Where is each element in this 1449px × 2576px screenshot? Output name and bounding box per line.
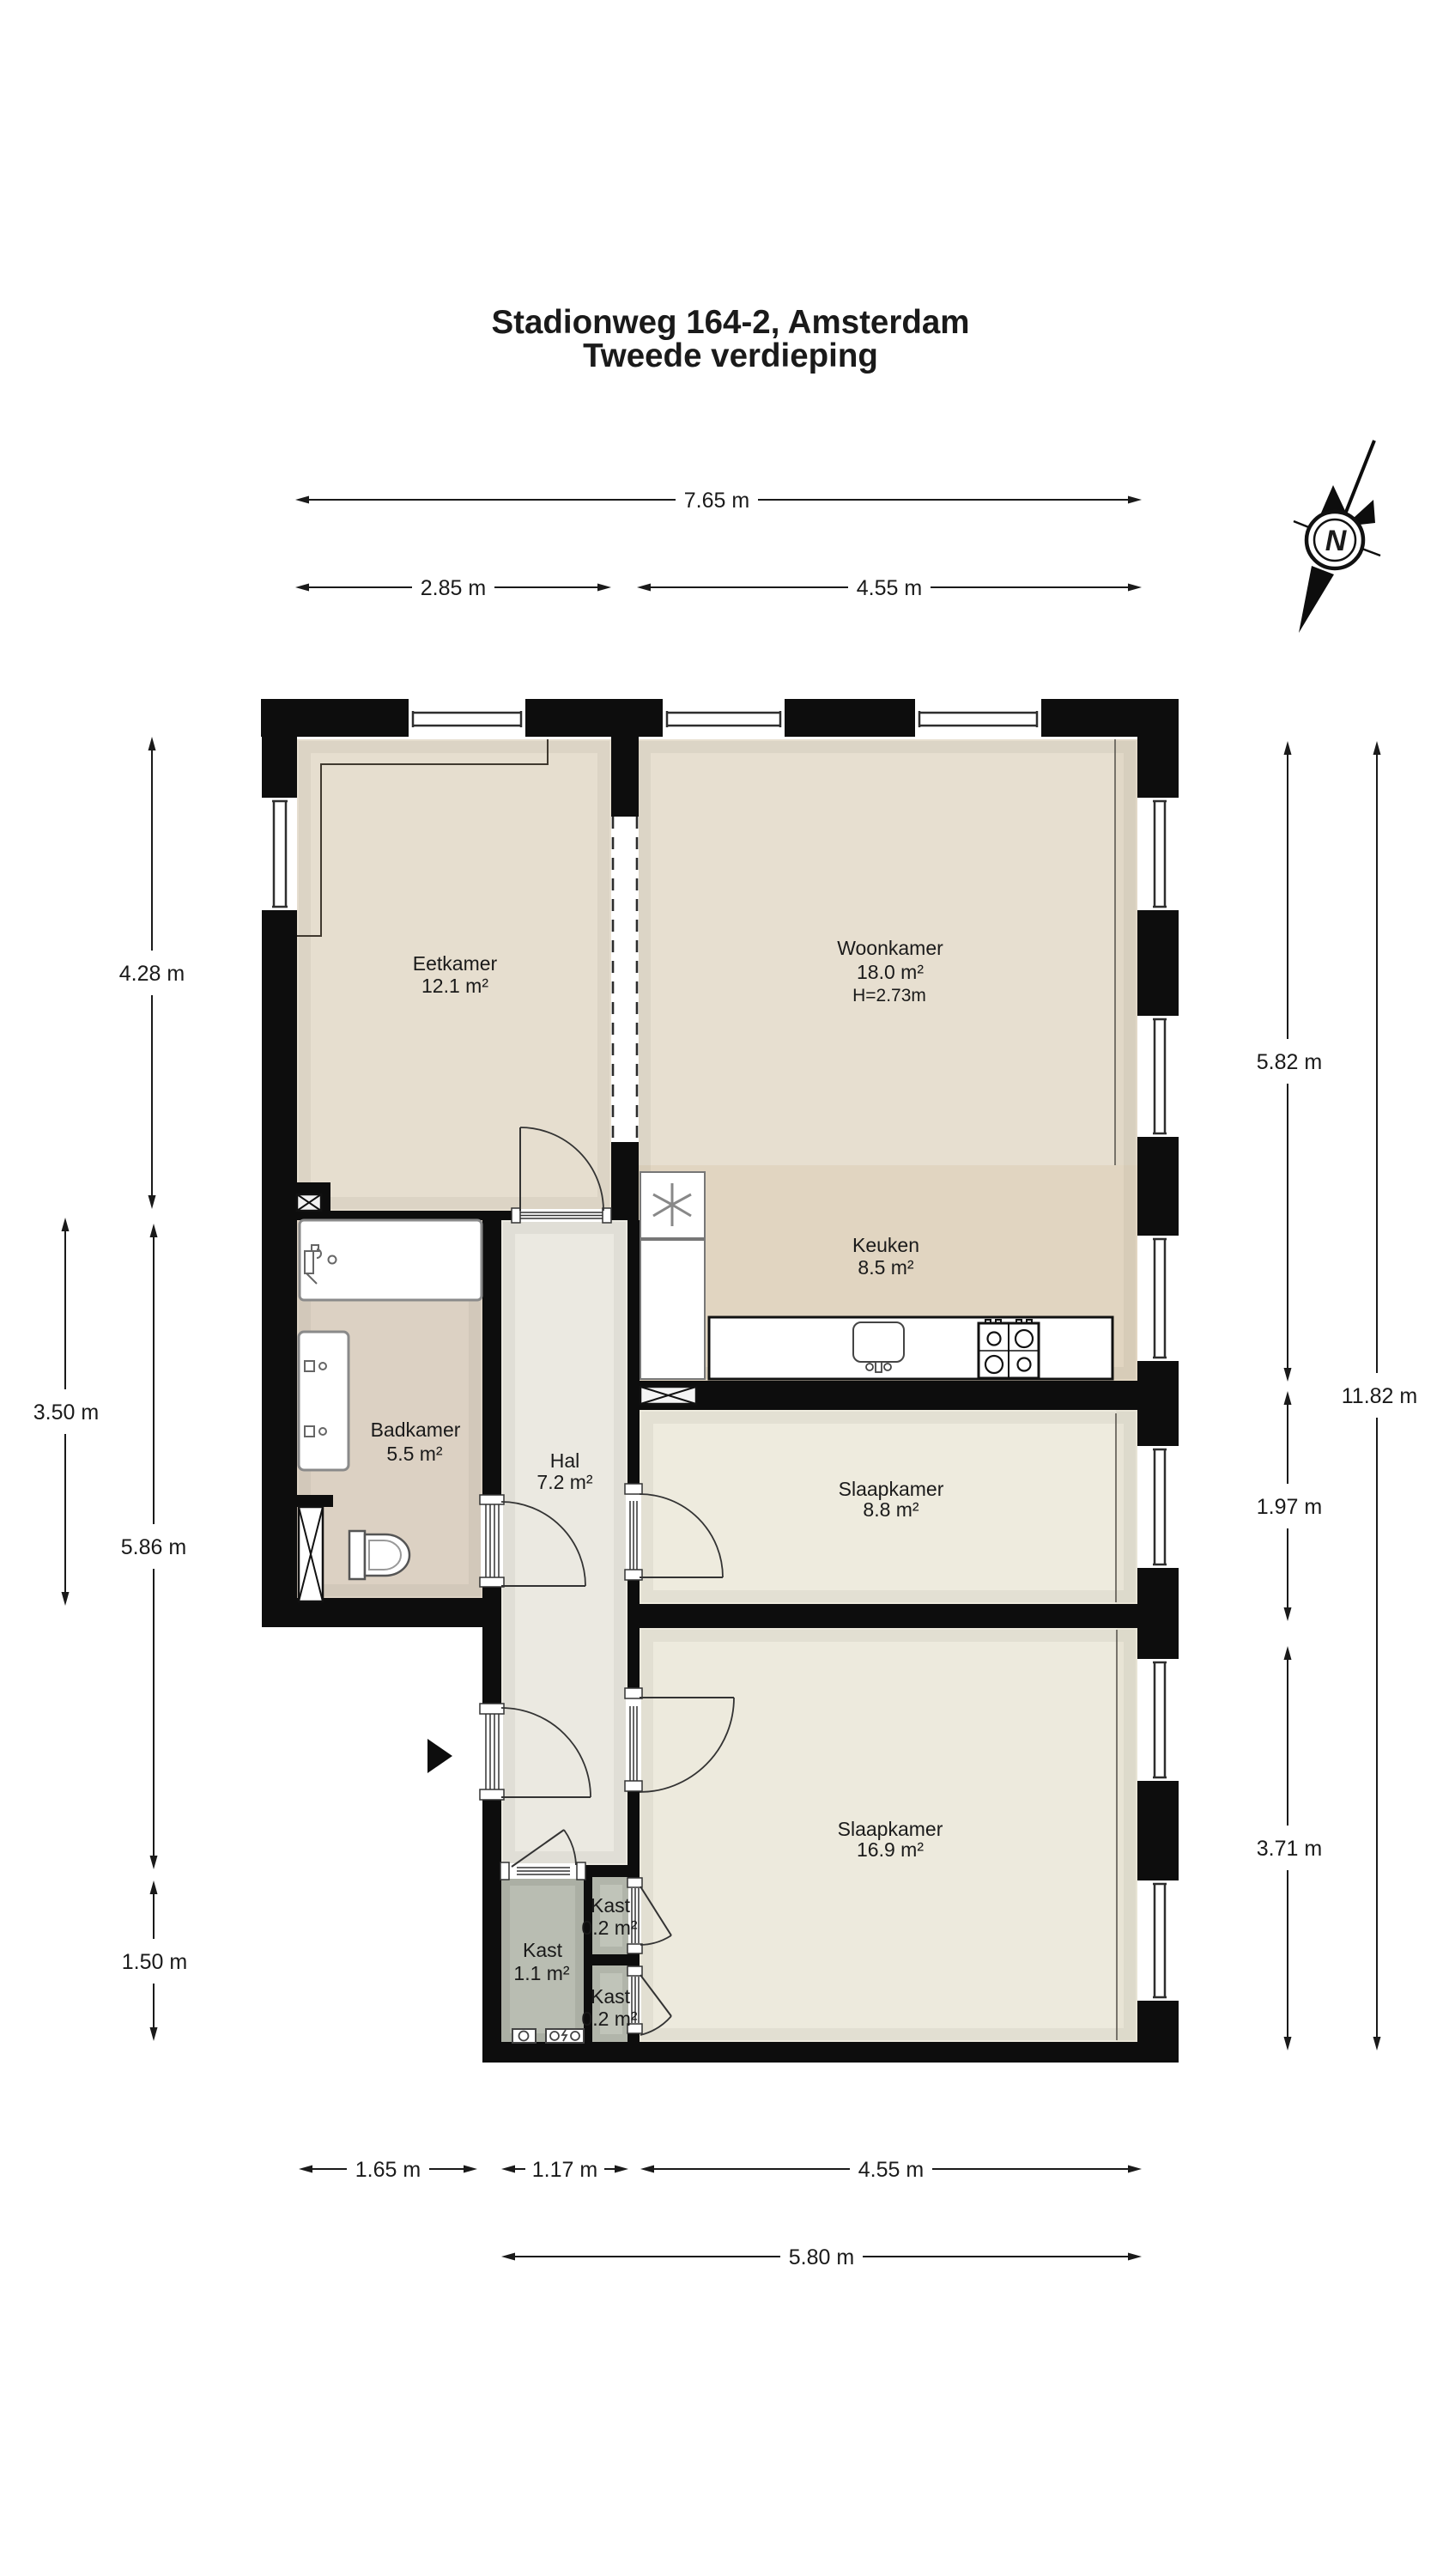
svg-text:Kast: Kast [523,1939,563,1961]
svg-text:Kast: Kast [591,1894,631,1917]
svg-text:5.5 m²: 5.5 m² [386,1443,443,1465]
svg-text:7.2 m²: 7.2 m² [537,1471,593,1493]
svg-text:4.55 m: 4.55 m [858,2158,924,2182]
svg-text:Stadionweg 164-2, Amsterdam: Stadionweg 164-2, Amsterdam [492,304,970,341]
svg-text:3.71 m: 3.71 m [1257,1837,1322,1861]
svg-text:1.1 m²: 1.1 m² [513,1962,570,1984]
svg-text:Slaapkamer: Slaapkamer [839,1478,944,1500]
svg-text:1.97 m: 1.97 m [1257,1495,1322,1519]
svg-text:4.55 m: 4.55 m [857,576,922,600]
svg-text:5.80 m: 5.80 m [789,2245,854,2269]
svg-text:18.0 m²: 18.0 m² [857,961,924,983]
svg-text:Hal: Hal [550,1449,580,1472]
svg-text:12.1 m²: 12.1 m² [421,975,488,997]
svg-text:Slaapkamer: Slaapkamer [838,1818,943,1840]
svg-text:N: N [1325,525,1348,557]
svg-text:0.2 m²: 0.2 m² [581,1917,638,1939]
svg-text:Woonkamer: Woonkamer [837,937,943,959]
svg-text:Badkamer: Badkamer [371,1419,461,1441]
svg-text:5.86 m: 5.86 m [121,1535,186,1559]
svg-text:4.28 m: 4.28 m [119,962,185,986]
svg-text:Kast: Kast [591,1985,631,2008]
svg-text:Eetkamer: Eetkamer [413,952,498,975]
svg-text:Tweede verdieping: Tweede verdieping [583,337,878,374]
svg-text:7.65 m: 7.65 m [684,489,749,513]
svg-text:8.5 m²: 8.5 m² [858,1256,914,1279]
svg-text:3.50 m: 3.50 m [33,1400,99,1425]
svg-text:Keuken: Keuken [852,1234,919,1256]
svg-text:1.65 m: 1.65 m [355,2158,421,2182]
svg-text:5.82 m: 5.82 m [1257,1050,1322,1074]
svg-text:16.9 m²: 16.9 m² [857,1838,924,1861]
svg-text:8.8 m²: 8.8 m² [863,1498,919,1521]
svg-text:H=2.73m: H=2.73m [852,986,926,1005]
svg-text:1.17 m: 1.17 m [532,2158,597,2182]
svg-text:2.85 m: 2.85 m [421,576,486,600]
svg-text:0.2 m²: 0.2 m² [581,2008,638,2030]
svg-text:1.50 m: 1.50 m [122,1950,187,1974]
svg-text:11.82 m: 11.82 m [1342,1384,1417,1408]
